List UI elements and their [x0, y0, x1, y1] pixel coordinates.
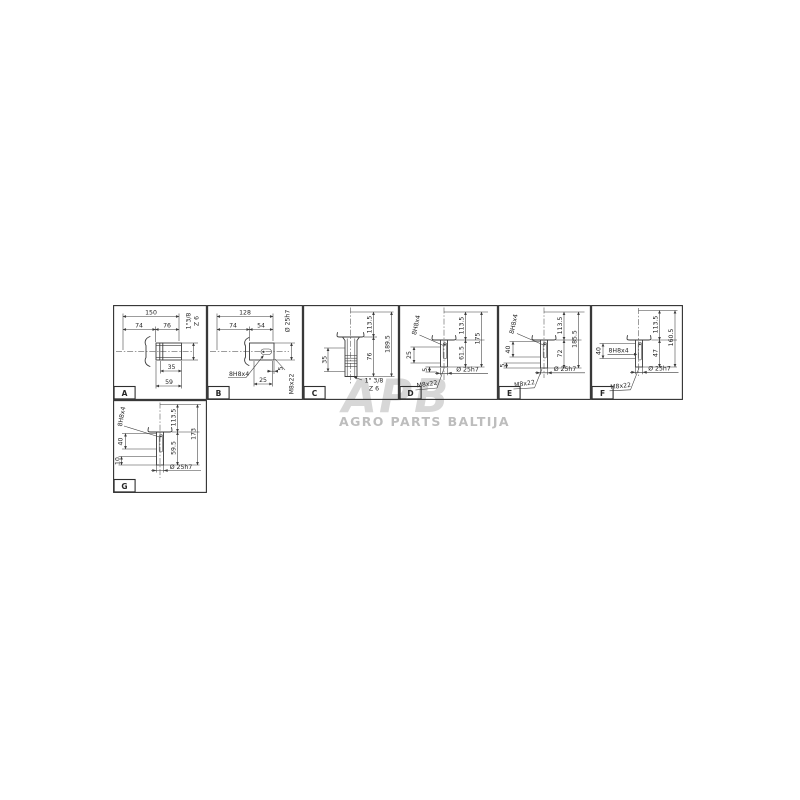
thread-label: M8x22: [289, 374, 296, 395]
dim-lower: 76: [367, 353, 374, 361]
dim-lower: 61.5: [459, 346, 466, 360]
dim-upper: 113.5: [171, 409, 178, 427]
dim-upper: 113.5: [653, 316, 660, 334]
dim-diameter: Ø 25h7: [648, 365, 671, 373]
dim-lower: 72: [557, 350, 564, 358]
dim-seg1: 74: [135, 323, 143, 330]
panel-f-letter: F: [600, 389, 605, 398]
keyway-label: 8H8x4: [117, 406, 127, 427]
dim-diameter: Ø 25h7: [170, 463, 193, 471]
dim-key-length: 40: [505, 346, 512, 354]
panel-d: 8H8x4 113.5 61.5 175 25 5 M8x22: [399, 305, 498, 400]
spline-size-label: 1" 3/8: [365, 378, 384, 385]
dim-upper: 113.5: [557, 317, 564, 335]
panel-c: 35 113.5 76 189.5 1" 3/8 Z 6 C: [303, 305, 399, 400]
dim-overall: 128: [239, 310, 251, 317]
dim-spline-size: 1"3/8: [186, 313, 193, 330]
dim-spline-length: 35: [168, 364, 176, 371]
dim-overall: 173: [191, 428, 198, 440]
dim-overall: 185.5: [572, 330, 579, 348]
page: APB AGRO PARTS BALTIJA: [0, 0, 800, 800]
dim-overall: 160.5: [668, 329, 675, 347]
dim-key-length: 40: [118, 438, 125, 446]
dim-key-length: 40: [596, 347, 603, 355]
dim-spline-length: 35: [322, 356, 329, 364]
dim-overall: 150: [145, 310, 157, 317]
dim-tip: 10: [115, 457, 122, 465]
panel-c-letter: C: [312, 389, 318, 398]
dim-overall: 175: [475, 333, 482, 345]
panel-b-letter: B: [216, 389, 222, 398]
dim-upper: 113.5: [459, 317, 466, 335]
panel-e-dimensions: 8H8x4 113.5 72 185.5 40 5 M8x22: [500, 312, 585, 389]
panel-g-dimensions: 8H8x4 113.5 59.5 173 40 10: [115, 405, 201, 473]
dim-overall: 189.5: [385, 335, 392, 353]
panel-b-dimensions: 128 74 54 Ø 25h7 8H8x4 25: [217, 310, 296, 395]
watermark-subtitle: AGRO PARTS BALTIJA: [339, 414, 510, 429]
panel-d-letter: D: [407, 389, 413, 398]
panel-g: 8H8x4 113.5 59.5 173 40 10: [113, 400, 207, 493]
dim-diameter: Ø 25h7: [554, 365, 577, 373]
panel-c-dimensions: 35 113.5 76 189.5 1" 3/8 Z 6: [322, 312, 395, 393]
dim-key-length: 25: [406, 351, 413, 359]
panel-f-dimensions: 40 8H8x4 113.5 47 160.5 Ø 25h7 M8x22: [596, 311, 679, 391]
dim-tip: 5: [500, 363, 507, 367]
keyway-label: 8H8x4: [609, 348, 629, 355]
dim-seg2: 54: [257, 323, 265, 330]
panel-f: 40 8H8x4 113.5 47 160.5 Ø 25h7 M8x22: [591, 305, 683, 400]
dim-hub-length: 59: [165, 379, 173, 386]
panel-a: 150 74 76 1"3/8 Z 6 35 59 A: [113, 305, 207, 400]
keyway-label: 8H8x4: [509, 314, 520, 335]
panel-b: 128 74 54 Ø 25h7 8H8x4 25: [207, 305, 303, 400]
keyway-label: 8H8x4: [229, 371, 249, 378]
panel-e: 8H8x4 113.5 72 185.5 40 5 M8x22: [498, 305, 591, 400]
dim-upper: 113.5: [367, 316, 374, 334]
panel-f-border: [592, 306, 683, 400]
dim-lower: 59.5: [171, 441, 178, 455]
dim-seg2: 76: [163, 323, 171, 330]
dim-lower: 47: [653, 349, 660, 357]
panel-a-dimensions: 150 74 76 1"3/8 Z 6 35 59: [123, 310, 201, 389]
panel-e-letter: E: [507, 389, 512, 398]
panel-g-letter: G: [121, 482, 127, 491]
dim-seg1: 74: [229, 323, 237, 330]
spline-teeth-label: Z 6: [369, 386, 379, 393]
dim-spline-teeth: Z 6: [194, 316, 201, 326]
dim-tip: 5: [422, 368, 429, 372]
dim-key-length: 25: [259, 377, 267, 384]
keyway-label: 8H8x4: [411, 315, 422, 336]
panel-a-letter: A: [122, 389, 128, 398]
dim-diameter: Ø 25h7: [456, 366, 479, 374]
thread-label: M8x22: [514, 379, 536, 389]
dim-diameter: Ø 25h7: [284, 310, 292, 333]
